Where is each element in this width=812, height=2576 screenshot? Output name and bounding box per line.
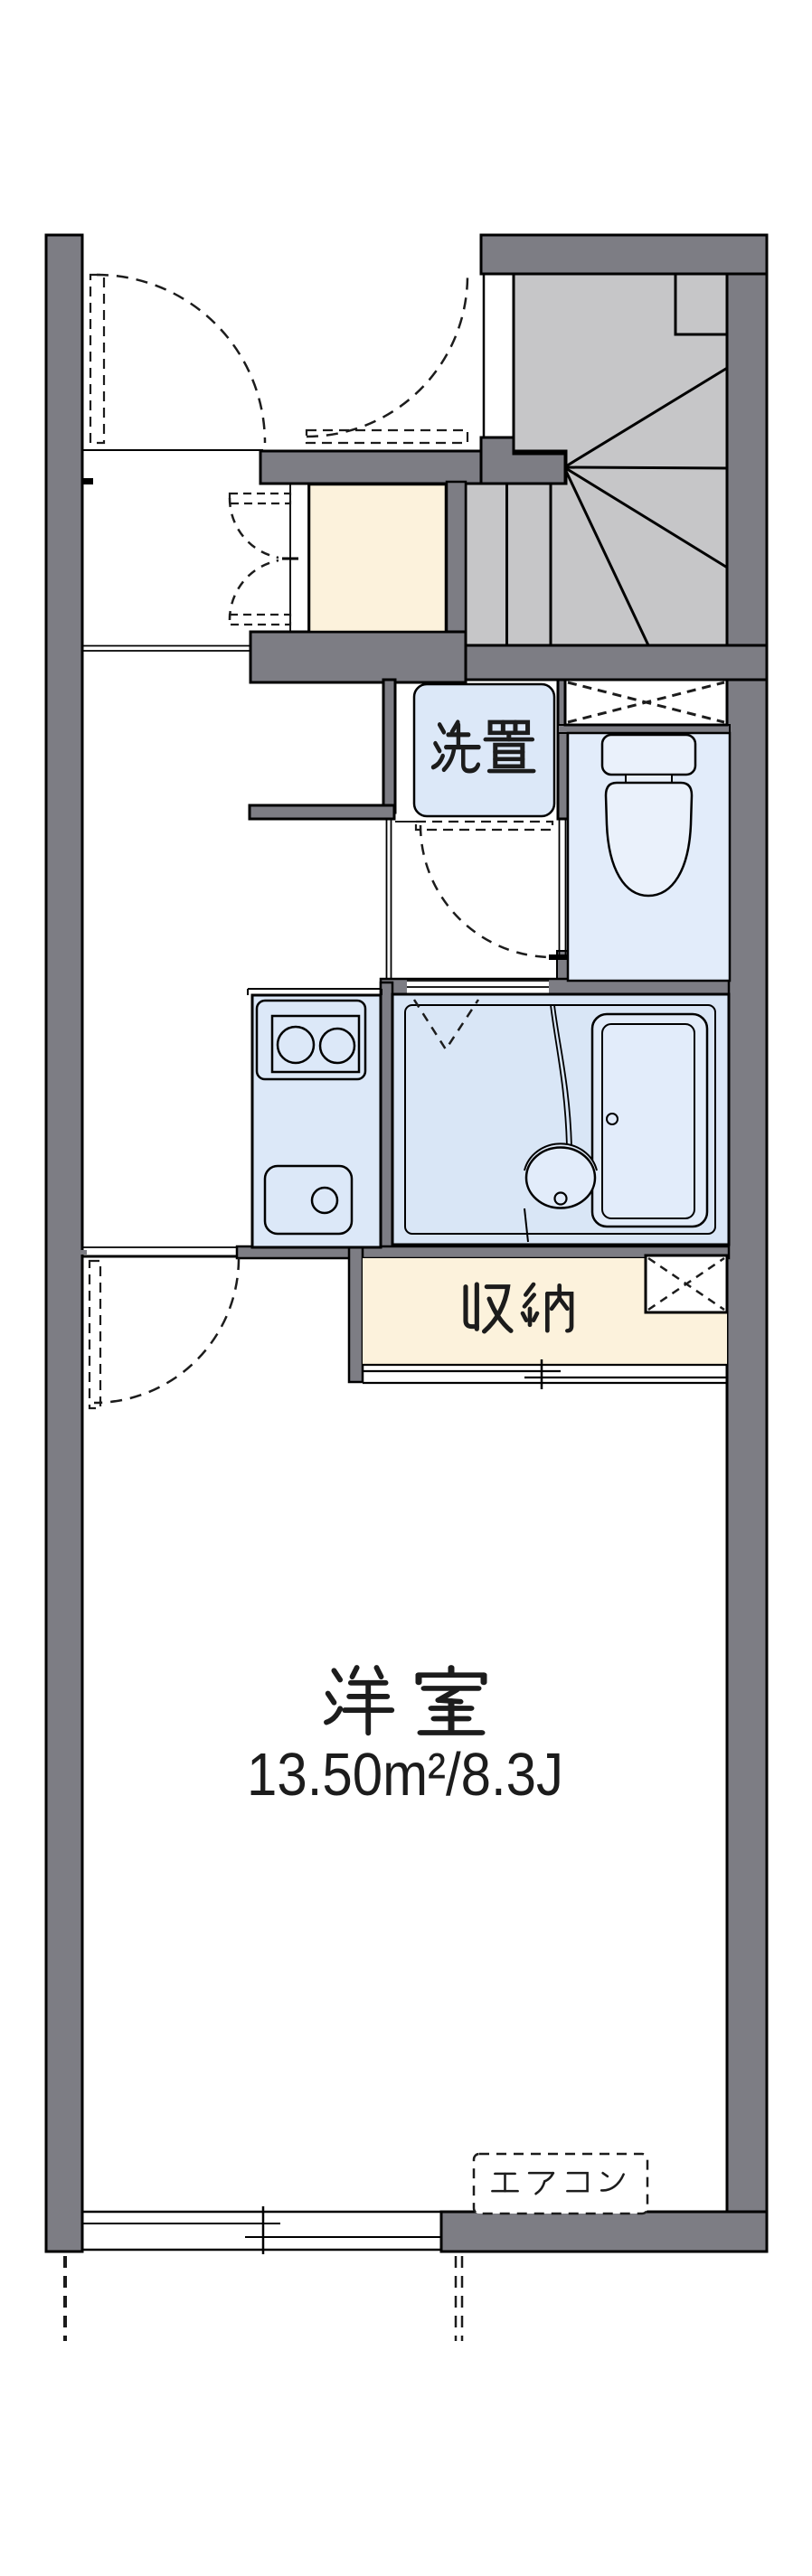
svg-text:13.50m²/8.3J: 13.50m²/8.3J	[247, 1741, 563, 1809]
